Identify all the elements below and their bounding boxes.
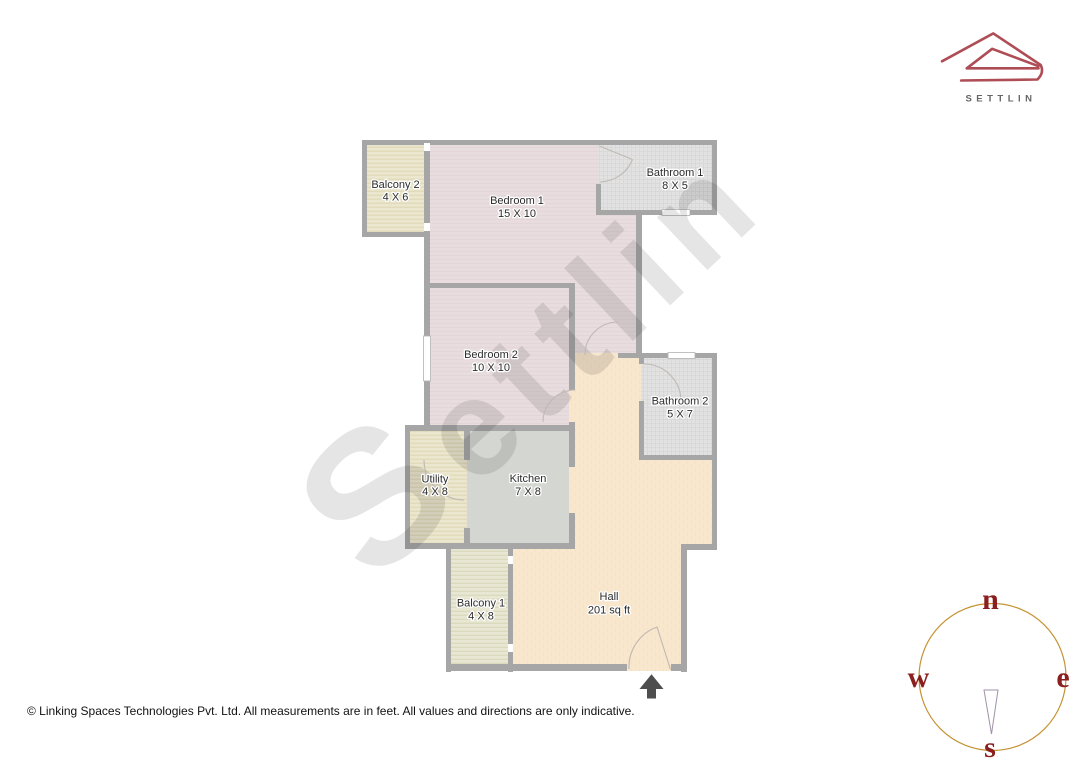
svg-text:15 X 10: 15 X 10 [498, 208, 536, 220]
svg-text:7 X 8: 7 X 8 [515, 486, 541, 498]
svg-text:Balcony 1: Balcony 1 [457, 598, 505, 610]
svg-text:Bathroom 2: Bathroom 2 [652, 396, 709, 408]
svg-text:Hall: Hall [600, 591, 619, 603]
svg-text:4 X 6: 4 X 6 [383, 192, 409, 204]
svg-text:Bedroom 1: Bedroom 1 [490, 195, 544, 207]
svg-text:SETTLIN: SETTLIN [965, 94, 1036, 105]
svg-text:Bathroom 1: Bathroom 1 [647, 167, 704, 179]
svg-text:e: e [1056, 661, 1069, 694]
svg-text:Utility: Utility [422, 474, 449, 486]
svg-text:10 X 10: 10 X 10 [472, 362, 510, 374]
svg-text:4 X 8: 4 X 8 [468, 611, 494, 623]
svg-text:201 sq ft: 201 sq ft [588, 605, 630, 617]
svg-text:Bedroom 2: Bedroom 2 [464, 349, 518, 361]
svg-text:w: w [908, 661, 930, 694]
svg-text:5 X 7: 5 X 7 [667, 409, 693, 421]
svg-text:8 X 5: 8 X 5 [662, 180, 688, 192]
svg-text:n: n [982, 583, 999, 616]
svg-text:© Linking Spaces Technologies: © Linking Spaces Technologies Pvt. Ltd. … [27, 704, 635, 718]
svg-text:Kitchen: Kitchen [510, 473, 547, 485]
svg-text:Balcony 2: Balcony 2 [371, 179, 419, 191]
svg-text:4 X 8: 4 X 8 [422, 486, 448, 498]
svg-text:s: s [984, 731, 996, 764]
